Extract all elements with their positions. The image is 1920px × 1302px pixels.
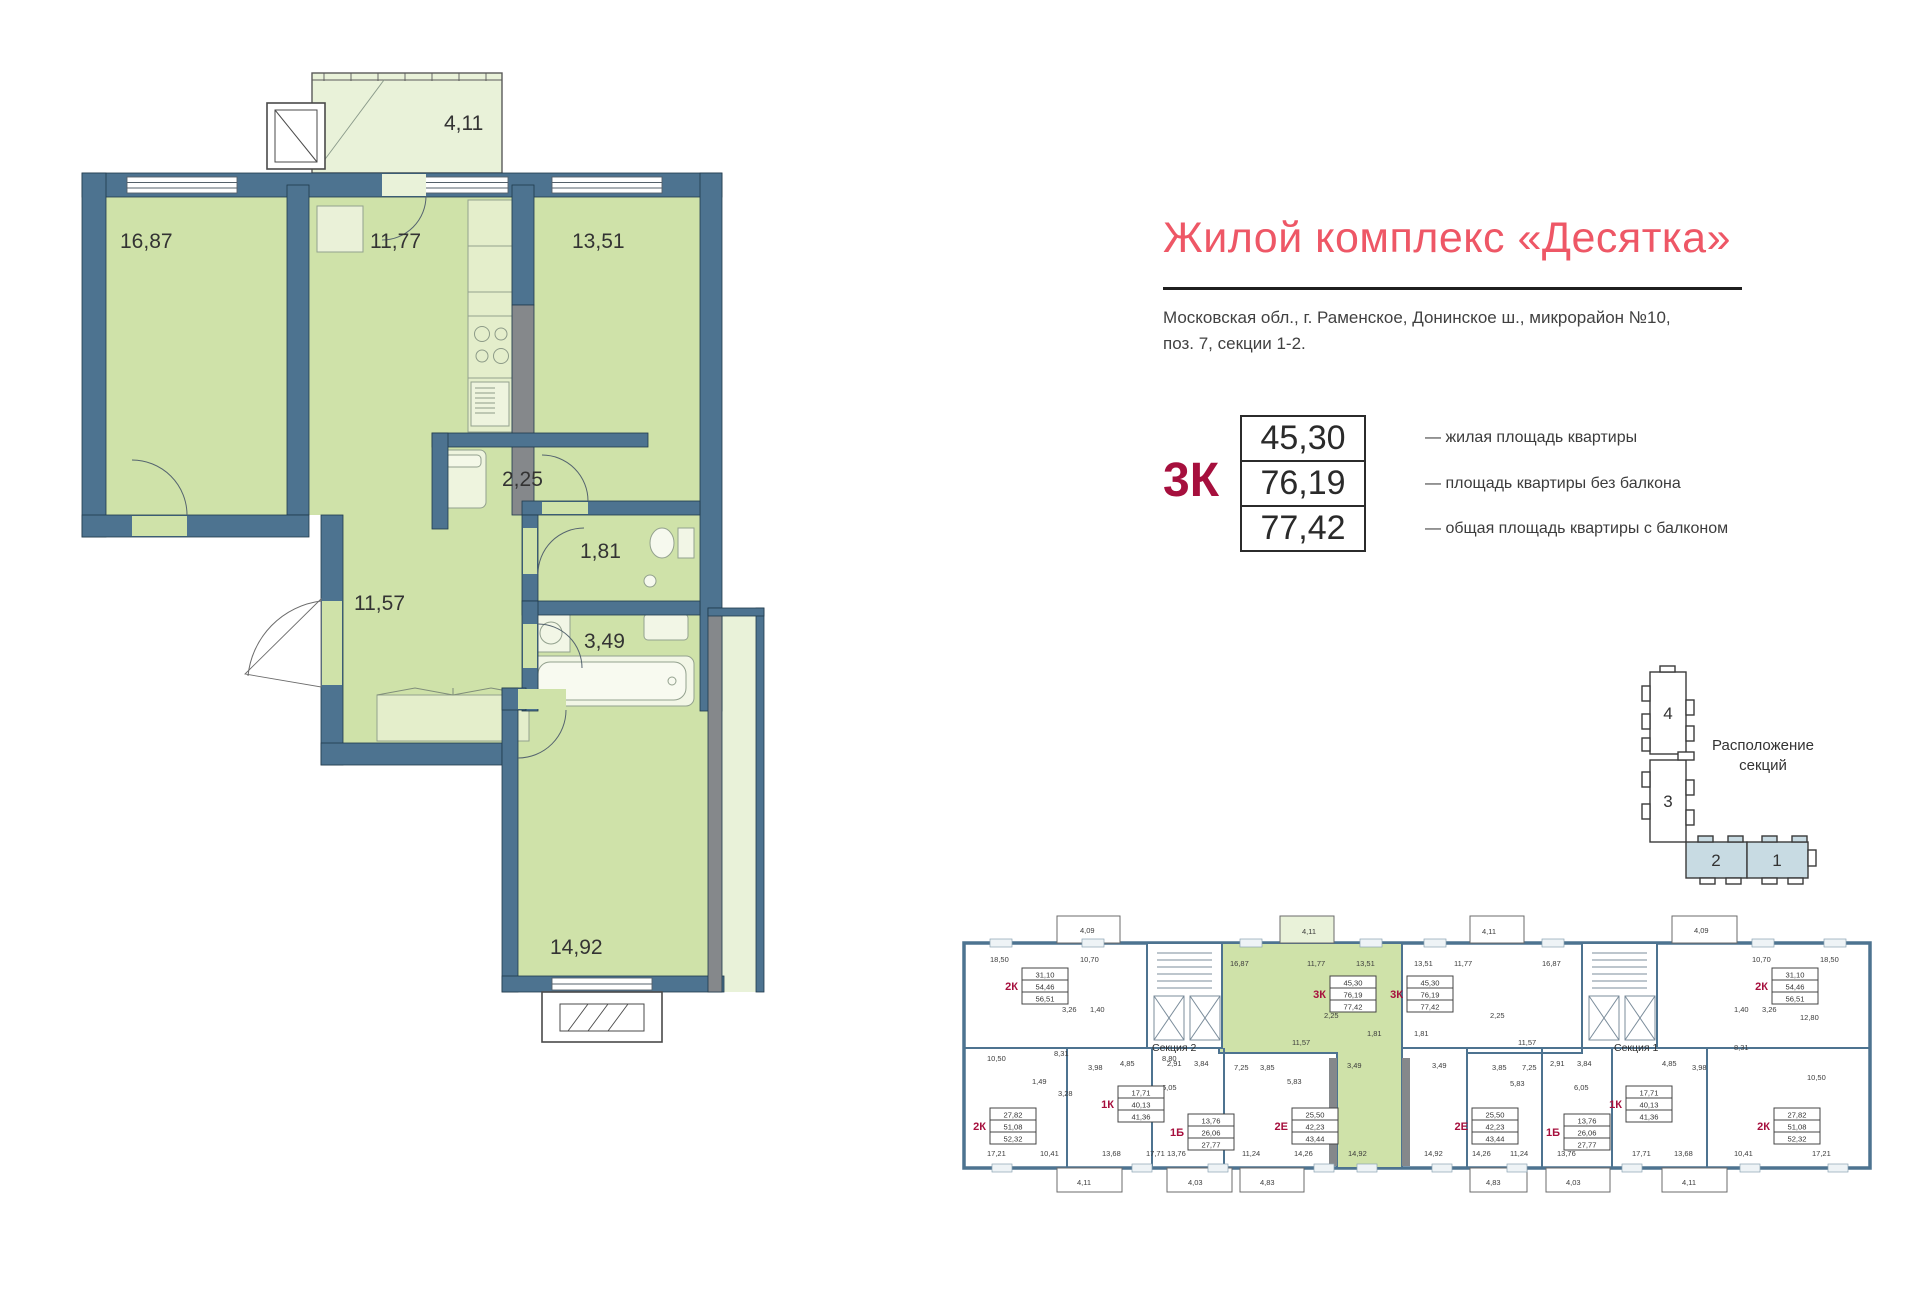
bp-room-label: 13,68 (1102, 1149, 1121, 1158)
bp-apartment-type: 2К (1757, 1121, 1770, 1133)
bp-apartment-type: 2К (1005, 981, 1018, 993)
bp-room-label: 10,41 (1734, 1149, 1753, 1158)
bp-room-label: 1,40 (1734, 1005, 1749, 1014)
bp-apartment-type: 2Е (1455, 1121, 1468, 1133)
bp-room-label: 11,24 (1242, 1149, 1260, 1158)
bp-apartment-area: 42,23 (1485, 1123, 1504, 1132)
bp-room-label: 16,87 (1542, 959, 1561, 968)
bp-room-label: 1,49 (1032, 1077, 1047, 1086)
bp-room-label: 4,83 (1260, 1178, 1275, 1187)
bp-room-label: 10,41 (1040, 1149, 1059, 1158)
bp-room-label: 3,84 (1577, 1059, 1592, 1068)
bp-apartment-area: 45,30 (1420, 979, 1439, 988)
bp-room-label: 11,77 (1454, 959, 1472, 968)
vent-shaft-icon (267, 103, 325, 169)
bp-apartment-type: 3К (1313, 989, 1326, 1001)
section2-label: Секция 2 (1152, 1042, 1196, 1054)
bp-room-label: 10,70 (1080, 955, 1099, 964)
address-line-2: поз. 7, секции 1-2. (1163, 331, 1671, 357)
bp-apartment-area: 17,71 (1639, 1089, 1658, 1098)
area-no-balcony-value: 76,19 (1242, 462, 1364, 507)
bp-apartment-area: 43,44 (1305, 1135, 1324, 1144)
apartment-summary: 3К 45,30 76,19 77,42 — жилая площадь ква… (1163, 415, 1763, 555)
section-number-3: 3 (1663, 792, 1672, 811)
bp-room-label: 13,51 (1414, 959, 1433, 968)
room-label-bath: 3,49 (584, 630, 625, 653)
upper-balconies (1057, 916, 1737, 943)
bp-room-label: 18,50 (1820, 955, 1839, 964)
bp-room-label: 7,25 (1234, 1063, 1249, 1072)
bp-room-label: 10,50 (1807, 1073, 1826, 1082)
bp-room-label: 1,81 (1367, 1029, 1382, 1038)
bp-apartment-area: 51,08 (1003, 1123, 1022, 1132)
wc-sink-icon (644, 575, 656, 587)
bp-apartment-type: 3К (1390, 989, 1403, 1001)
room-label-kitchen: 11,77 (370, 230, 421, 253)
bp-apartment-area: 77,42 (1343, 1003, 1362, 1012)
bp-room-label: 3,26 (1062, 1005, 1077, 1014)
bp-apartment-area: 76,19 (1420, 991, 1439, 1000)
bp-room-label: 3,98 (1692, 1063, 1707, 1072)
bp-apartment-area: 52,32 (1003, 1135, 1022, 1144)
bp-apartment-area: 17,71 (1131, 1089, 1150, 1098)
legend-no-balcony: — площадь квартиры без балкона (1425, 461, 1728, 507)
bp-room-label: 2,25 (1490, 1011, 1505, 1020)
bp-room-label: 3,28 (1058, 1089, 1073, 1098)
bp-apartment-area: 42,23 (1305, 1123, 1324, 1132)
bp-room-label: 14,92 (1348, 1149, 1367, 1158)
legend-total: — общая площадь квартиры с балконом (1425, 506, 1728, 552)
bp-apartment-area: 41,36 (1639, 1113, 1658, 1122)
room-label-storage: 2,25 (502, 468, 543, 491)
room-label-wc: 1,81 (580, 540, 621, 563)
brochure-page: { "header": { "title": "Жилой комплекс «… (0, 0, 1920, 1302)
bp-room-label: 3,85 (1492, 1063, 1507, 1072)
bp-apartment-area: 77,42 (1420, 1003, 1439, 1012)
area-total-value: 77,42 (1242, 507, 1364, 550)
bp-room-label: 4,11 (1302, 927, 1316, 936)
bp-room-label: 2,91 (1550, 1059, 1565, 1068)
bp-room-label: 4,11 (1077, 1178, 1091, 1187)
section-number-2: 2 (1711, 851, 1720, 870)
bp-room-label: 3,84 (1194, 1059, 1209, 1068)
bp-room-label: 13,51 (1356, 959, 1375, 968)
bp-room-label: 4,03 (1566, 1178, 1581, 1187)
room-label-bedroom2: 13,51 (572, 230, 625, 253)
bp-apartment-area: 43,44 (1485, 1135, 1504, 1144)
bp-room-label: 16,87 (1230, 959, 1249, 968)
bp-apartment-area: 27,77 (1201, 1141, 1220, 1150)
bp-apartment-area: 13,76 (1201, 1117, 1220, 1126)
bp-room-label: 3,49 (1432, 1061, 1447, 1070)
bp-apartment-area: 41,36 (1131, 1113, 1150, 1122)
building-floor-plan: 18,5010,704,0916,8711,7713,514,1113,5111… (962, 898, 1882, 1198)
bp-room-label: 8,31 (1054, 1049, 1069, 1058)
title-divider (1163, 287, 1742, 290)
bp-room-label: 7,25 (1522, 1063, 1537, 1072)
bp-apartment-area: 51,08 (1787, 1123, 1806, 1132)
bp-apartment-area: 40,13 (1639, 1101, 1658, 1110)
bp-room-label: 2,91 (1167, 1059, 1182, 1068)
bp-room-label: 4,11 (1682, 1178, 1696, 1187)
bp-apartment-area: 45,30 (1343, 979, 1362, 988)
bp-room-label: 4,85 (1120, 1059, 1135, 1068)
bp-apartment-type: 1Б (1546, 1127, 1560, 1139)
bp-apartment-area: 31,10 (1035, 971, 1054, 980)
bp-room-label: 6,05 (1574, 1083, 1589, 1092)
bp-room-label: 3,85 (1260, 1063, 1275, 1072)
bp-room-label: 13,76 (1167, 1149, 1186, 1158)
sink-icon (471, 382, 509, 426)
bp-room-label: 5,83 (1510, 1079, 1525, 1088)
bp-apartment-area: 26,06 (1577, 1129, 1596, 1138)
bp-room-label: 11,24 (1510, 1149, 1528, 1158)
bp-room-label: 10,50 (987, 1054, 1006, 1063)
bp-apartment-area: 52,32 (1787, 1135, 1806, 1144)
svg-text:Расположение: Расположение (1712, 737, 1814, 754)
area-table: 45,30 76,19 77,42 (1240, 415, 1366, 552)
section-number-4: 4 (1663, 704, 1672, 723)
bp-room-label: 4,09 (1080, 926, 1095, 935)
bp-room-label: 14,26 (1294, 1149, 1313, 1158)
bp-room-label: 4,09 (1694, 926, 1709, 935)
bp-apartment-area: 54,46 (1785, 983, 1804, 992)
bp-apartment-type: 1К (1101, 1099, 1114, 1111)
stair-core-left (1147, 943, 1222, 1048)
bp-room-label: 10,70 (1752, 955, 1771, 964)
room-label-living: 16,87 (120, 230, 173, 253)
area-legend: — жилая площадь квартиры — площадь кварт… (1425, 415, 1728, 552)
bp-room-label: 3,98 (1088, 1063, 1103, 1072)
address-line-1: Московская обл., г. Раменское, Донинское… (1163, 305, 1671, 331)
room-label-hall: 11,57 (354, 592, 405, 615)
bp-room-label: 17,21 (987, 1149, 1006, 1158)
floor-areas (94, 185, 756, 992)
apartment-type-label: 3К (1163, 453, 1219, 508)
bp-apartment-area: 27,82 (1003, 1111, 1022, 1120)
bp-room-label: 4,85 (1662, 1059, 1677, 1068)
bp-room-label: 3,26 (1762, 1005, 1777, 1014)
room-label-bedroom1: 14,92 (550, 936, 603, 959)
bp-room-label: 1,40 (1090, 1005, 1105, 1014)
apartment-floor-plan: 16,87 11,77 13,51 4,11 2,25 1,81 11,57 3… (72, 48, 862, 1048)
bp-room-label: 17,71 (1146, 1149, 1165, 1158)
bp-room-label: 14,92 (1424, 1149, 1443, 1158)
bp-room-label: 5,83 (1287, 1077, 1302, 1086)
bp-room-label: 11,57 (1518, 1038, 1536, 1047)
section-number-1: 1 (1772, 851, 1781, 870)
bp-apartment-area: 40,13 (1131, 1101, 1150, 1110)
bp-room-label: 4,83 (1486, 1178, 1501, 1187)
svg-text:секций: секций (1739, 757, 1787, 774)
bp-apartment-area: 25,50 (1485, 1111, 1504, 1120)
address-block: Московская обл., г. Раменское, Донинское… (1163, 305, 1671, 356)
bp-room-label: 3,49 (1347, 1061, 1362, 1070)
bp-room-label: 8,31 (1734, 1043, 1749, 1052)
bp-apartment-area: 56,51 (1035, 995, 1054, 1004)
bp-room-label: 1,81 (1414, 1029, 1429, 1038)
room-label-balcony: 4,11 (444, 112, 483, 135)
bottom-balcony (542, 992, 662, 1042)
bp-apartment-area: 31,10 (1785, 971, 1804, 980)
bp-apartment-area: 25,50 (1305, 1111, 1324, 1120)
bp-room-label: 18,50 (990, 955, 1009, 964)
bp-room-label: 17,21 (1812, 1149, 1831, 1158)
bp-apartment-type: 1К (1609, 1099, 1622, 1111)
page-title: Жилой комплекс «Десятка» (1163, 214, 1731, 263)
bp-apartment-area: 76,19 (1343, 991, 1362, 1000)
area-living-value: 45,30 (1242, 417, 1364, 462)
bp-room-label: 12,80 (1800, 1013, 1819, 1022)
bp-apartment-area: 26,06 (1201, 1129, 1220, 1138)
bp-apartment-type: 2К (1755, 981, 1768, 993)
bp-apartment-area: 27,82 (1787, 1111, 1806, 1120)
bp-apartment-area: 56,51 (1785, 995, 1804, 1004)
bp-apartment-type: 2Е (1275, 1121, 1288, 1133)
bp-room-label: 13,68 (1674, 1149, 1693, 1158)
bp-apartment-area: 27,77 (1577, 1141, 1596, 1150)
bp-room-label: 4,03 (1188, 1178, 1203, 1187)
bp-room-label: 4,11 (1482, 927, 1496, 936)
bp-room-label: 11,57 (1292, 1038, 1310, 1047)
legend-living: — жилая площадь квартиры (1425, 415, 1728, 461)
bath-sink-icon (644, 614, 688, 640)
stair-core-right (1582, 943, 1657, 1048)
bp-apartment-type: 1Б (1170, 1127, 1184, 1139)
bp-apartment-area: 13,76 (1577, 1117, 1596, 1126)
bp-apartment-area: 54,46 (1035, 983, 1054, 992)
sections-diagram: 4 3 2 1 Расположение секций (1628, 662, 1908, 892)
bp-room-label: 14,26 (1472, 1149, 1491, 1158)
bp-room-label: 11,77 (1307, 959, 1325, 968)
sections-caption: Расположение секций (1712, 737, 1814, 774)
section1-label: Секция 1 (1614, 1042, 1658, 1054)
bp-apartment-type: 2К (973, 1121, 986, 1133)
bp-room-label: 17,71 (1632, 1149, 1651, 1158)
